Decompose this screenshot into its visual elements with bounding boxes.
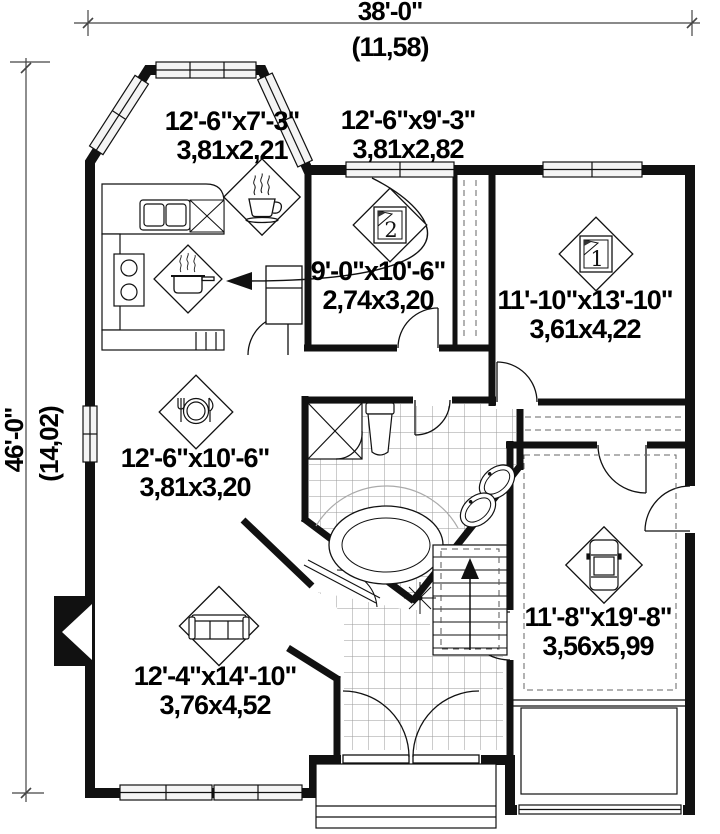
- bedroom-2-number: 2: [384, 218, 397, 242]
- garage-size-label: 11'-8"x19'-8" 3,56x5,99: [478, 603, 718, 661]
- floor-plan-page: 2 1: [0, 0, 720, 834]
- overall-width-m-label: (11,58): [270, 32, 510, 63]
- car-icon: [566, 527, 642, 603]
- garage-side-door: [645, 486, 690, 531]
- entry-porch: [316, 764, 496, 828]
- overall-depth-ft-label: 46'-0": [1, 370, 27, 510]
- bed-icon: 1: [559, 217, 633, 291]
- bedroom2-window: [346, 162, 454, 177]
- living-size-label: 12'-4"x14'-10" 3,76x4,52: [95, 662, 335, 720]
- stove: [114, 254, 144, 306]
- cutlery-plate-icon: [159, 375, 233, 449]
- overall-depth-m-label: (14,02): [36, 374, 62, 514]
- shower: [308, 403, 362, 459]
- fireplace: [54, 596, 92, 666]
- overall-width-ft-label: 38'-0": [270, 0, 510, 27]
- living-window-1: [120, 785, 212, 800]
- bedroom-2-size-label: 9'-0"x10'-6" 2,74x3,20: [258, 257, 498, 315]
- dishwasher-x: [190, 200, 224, 232]
- dining-size-label: 12'-6"x10'-6" 3,81x3,20: [75, 444, 315, 502]
- bedroom-1-size-label: 11'-10"x13'-10" 3,61x4,22: [465, 286, 705, 344]
- garage-door: [512, 700, 688, 814]
- kitchen-size-label: 12'-6"x9'-3" 3,81x2,82: [288, 106, 528, 164]
- bedroom1-window: [543, 162, 642, 177]
- coffee-cup-icon: [224, 159, 300, 235]
- bed-icon: 2: [353, 188, 427, 262]
- kitchen-sink: [140, 200, 190, 230]
- hall-garage-door: [598, 445, 646, 493]
- sofa-icon: [179, 586, 258, 665]
- living-window-2: [214, 785, 302, 800]
- bay-window-top: [156, 62, 256, 78]
- cooking-pot-icon: [154, 245, 222, 313]
- bedroom-1-number: 1: [590, 247, 603, 271]
